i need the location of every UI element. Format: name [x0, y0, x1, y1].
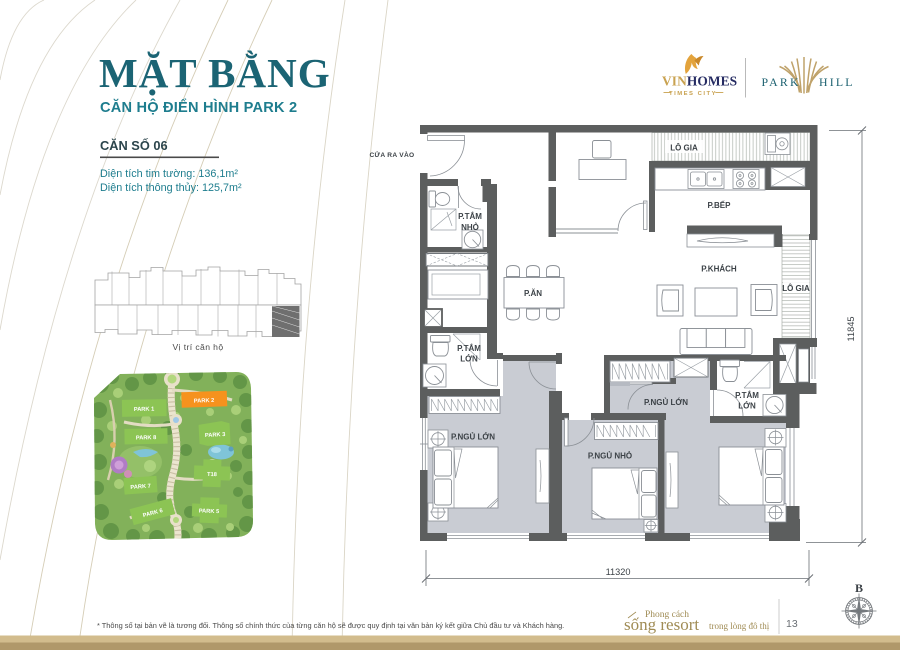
svg-text:CĂN SỐ 06: CĂN SỐ 06 — [100, 138, 168, 153]
svg-text:NHỎ: NHỎ — [461, 223, 479, 232]
svg-text:P.TẮM: P.TẮM — [457, 344, 481, 353]
svg-text:Diện tích tim tường: 136,1m²: Diện tích tim tường: 136,1m² — [100, 168, 238, 180]
svg-text:T18: T18 — [207, 472, 217, 478]
svg-text:PARK 1: PARK 1 — [134, 407, 155, 413]
svg-text:P.BẾP: P.BẾP — [708, 200, 732, 210]
svg-text:P.TẮM: P.TẮM — [458, 212, 482, 221]
svg-text:PARK: PARK — [762, 75, 801, 89]
svg-text:Vị trí căn hộ: Vị trí căn hộ — [172, 342, 223, 352]
svg-text:LÔ GIA: LÔ GIA — [670, 144, 698, 153]
svg-text:MẶT BẰNG: MẶT BẰNG — [99, 50, 331, 96]
svg-text:HILL: HILL — [819, 75, 855, 89]
svg-text:11320: 11320 — [606, 567, 631, 577]
svg-text:LÔ GIA: LÔ GIA — [782, 284, 810, 293]
svg-text:LỚN: LỚN — [738, 402, 756, 411]
svg-text:trong lòng đô thị: trong lòng đô thị — [709, 621, 770, 631]
svg-text:P.NGỦ LỚN: P.NGỦ LỚN — [451, 433, 495, 442]
svg-text:VINHOMES: VINHOMES — [662, 74, 737, 89]
svg-text:CỬA RA VÀO: CỬA RA VÀO — [370, 150, 415, 159]
svg-text:sống resort: sống resort — [624, 615, 699, 634]
svg-text:* Thông số tại bản vẽ là tương: * Thông số tại bản vẽ là tương đối. Thôn… — [97, 621, 564, 630]
svg-text:PARK 5: PARK 5 — [199, 508, 220, 515]
svg-text:13: 13 — [786, 618, 798, 630]
svg-text:P.NGỦ NHỎ: P.NGỦ NHỎ — [588, 452, 632, 461]
svg-text:TIMES CITY: TIMES CITY — [669, 91, 717, 97]
svg-text:P.TẮM: P.TẮM — [735, 391, 759, 400]
svg-text:PARK 3: PARK 3 — [205, 432, 226, 439]
svg-text:Diện tích thông thủy: 125,7m²: Diện tích thông thủy: 125,7m² — [100, 182, 242, 194]
svg-text:P.ĂN: P.ĂN — [524, 289, 542, 298]
svg-text:LỚN: LỚN — [460, 355, 478, 364]
svg-text:PARK 8: PARK 8 — [136, 435, 157, 441]
svg-text:11845: 11845 — [846, 317, 856, 342]
svg-text:CĂN HỘ ĐIỂN HÌNH PARK 2: CĂN HỘ ĐIỂN HÌNH PARK 2 — [100, 98, 297, 116]
svg-text:B: B — [855, 581, 863, 595]
svg-text:PARK 2: PARK 2 — [194, 398, 215, 405]
svg-text:P.NGỦ LỚN: P.NGỦ LỚN — [644, 398, 688, 407]
svg-text:P.KHÁCH: P.KHÁCH — [701, 265, 737, 274]
